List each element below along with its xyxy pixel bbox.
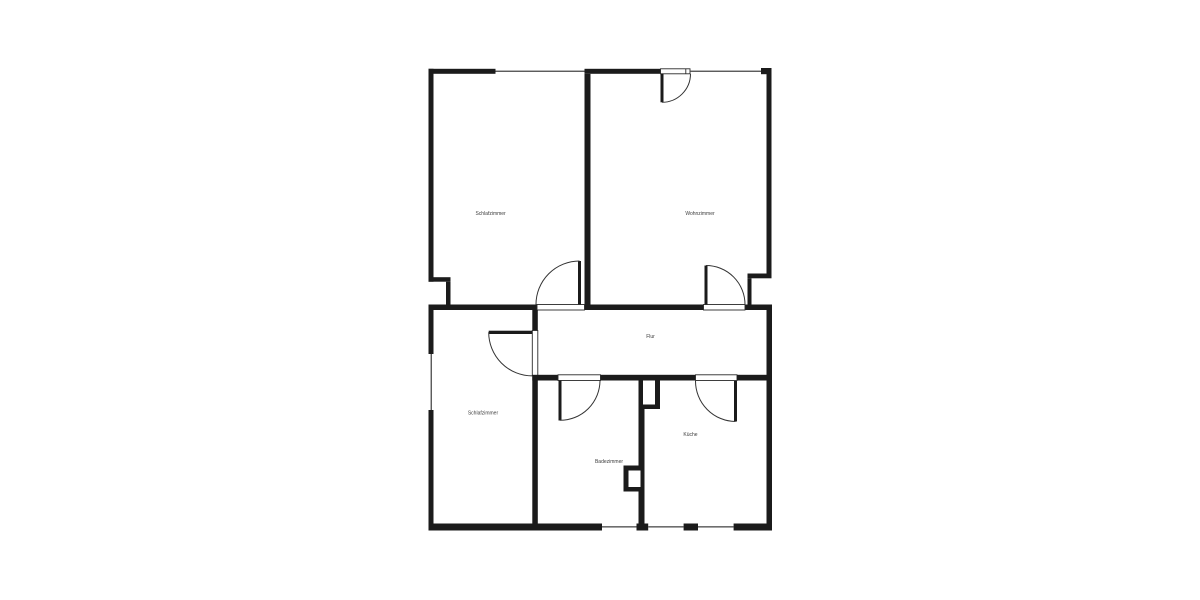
svg-text:Küche: Küche: [683, 432, 697, 438]
svg-text:Wohnzimmer: Wohnzimmer: [685, 211, 715, 217]
svg-text:Flur: Flur: [646, 334, 655, 340]
svg-text:Schlafzimmer: Schlafzimmer: [468, 411, 499, 417]
svg-text:Schlafzimmer: Schlafzimmer: [475, 211, 506, 217]
svg-text:Badezimmer: Badezimmer: [595, 459, 623, 465]
